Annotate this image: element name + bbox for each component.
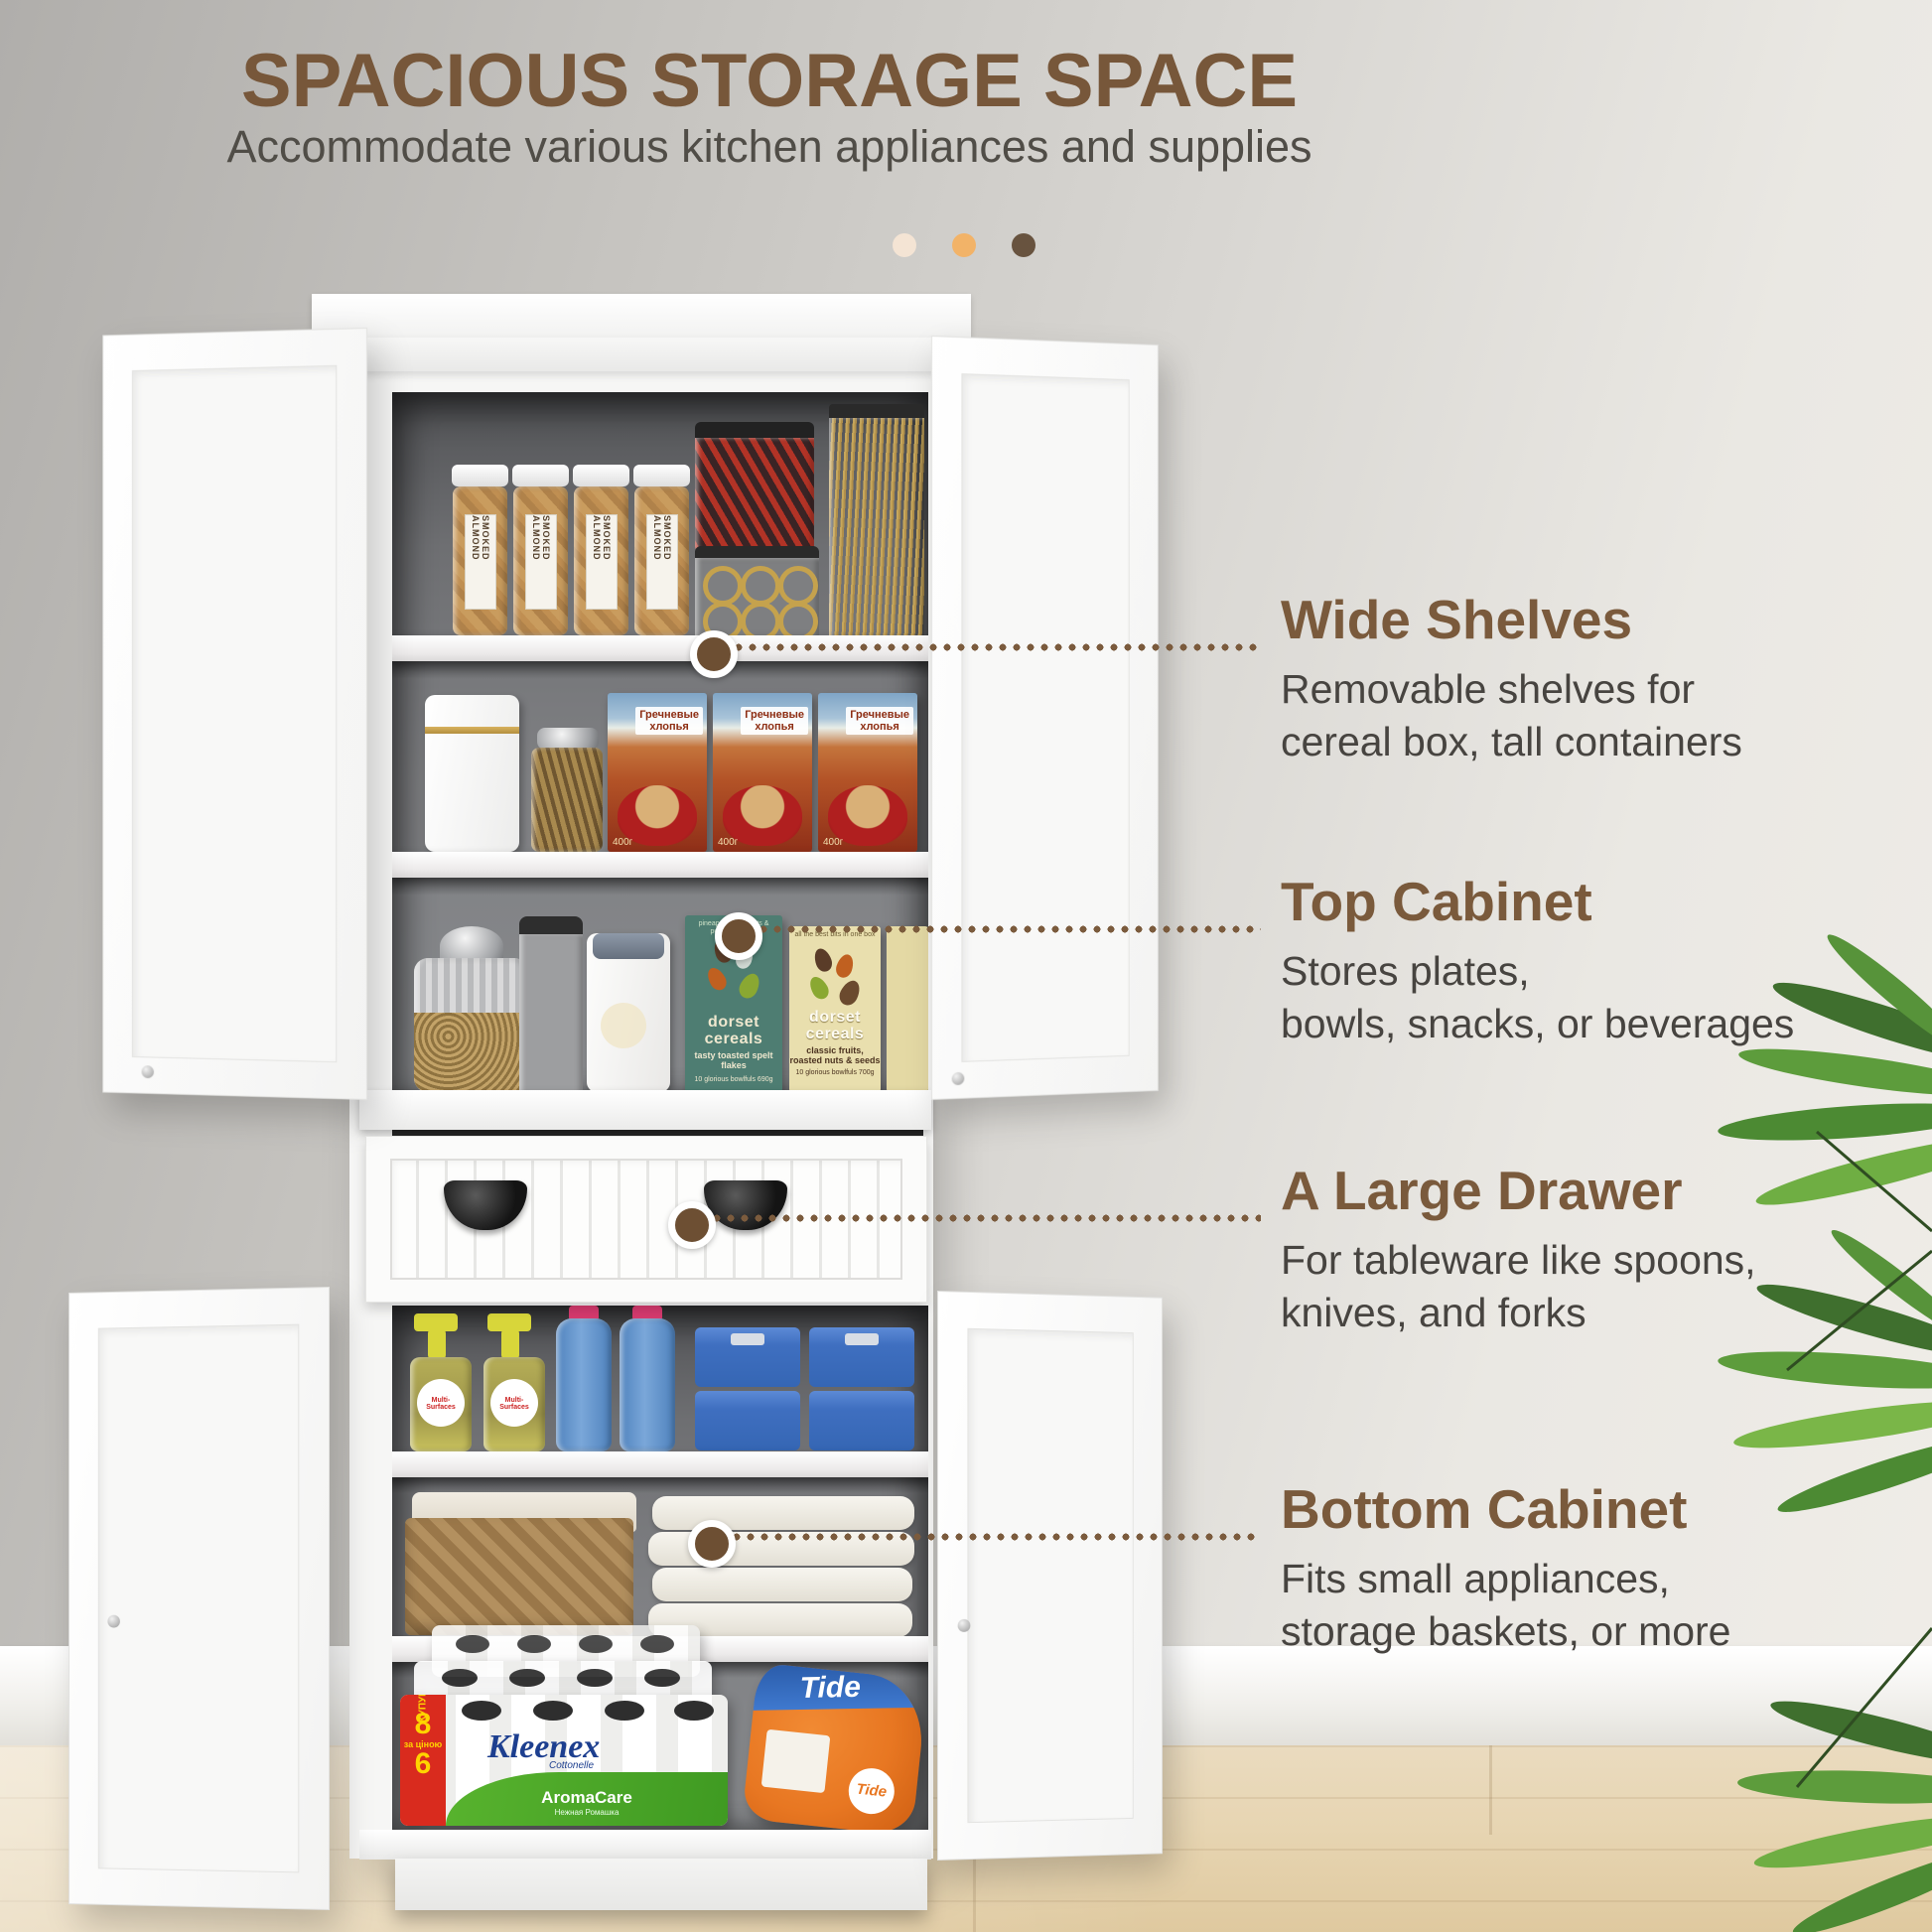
cereal-weight: 400г — [823, 837, 843, 848]
dorset-box-cream-partial — [887, 926, 928, 1092]
door-top-left-panel — [132, 365, 337, 1062]
shelf-shadow — [392, 661, 928, 679]
spray-neck — [501, 1329, 519, 1359]
shelf-shadow — [392, 878, 928, 896]
spray-label: Multi-Surfaces — [417, 1397, 465, 1411]
dorset-brand: dorset — [708, 1014, 759, 1031]
door-bottom-right-panel — [967, 1328, 1133, 1823]
accent-dot-2 — [952, 233, 976, 257]
callout-heading-top-cabinet: Top Cabinet — [1281, 870, 1592, 933]
kleenex-promo-count: 6 — [400, 1749, 446, 1779]
callout-body-line: cereal box, tall containers — [1281, 716, 1742, 768]
spray-bottle: Multi-Surfaces — [410, 1357, 472, 1451]
callout-body-large-drawer: For tableware like spoons, knives, and f… — [1281, 1234, 1756, 1339]
almond-jar-label: SMOKED ALMOND — [471, 515, 490, 609]
tide-label-patch — [761, 1729, 831, 1793]
spray-neck — [428, 1329, 446, 1359]
pepper-container — [695, 422, 814, 552]
spray-bottle: Multi-Surfaces — [483, 1357, 545, 1451]
kleenex-variant-sub: Нежная Ромашка — [446, 1808, 728, 1817]
detergent-bottle — [620, 1318, 675, 1451]
page-subtitle: Accommodate various kitchen appliances a… — [0, 121, 1539, 173]
callout-dot-bottom-cabinet — [688, 1520, 736, 1568]
callout-body-wide-shelves: Removable shelves for cereal box, tall c… — [1281, 663, 1742, 768]
almond-jar-label: SMOKED ALMOND — [652, 515, 672, 609]
page-title: SPACIOUS STORAGE SPACE — [0, 38, 1539, 124]
tide-logo-small: Tide — [848, 1780, 896, 1802]
cereal-box: Гречневые хлопья 400г — [818, 693, 917, 852]
callout-body-line: Stores plates, — [1281, 945, 1794, 998]
callout-line-bottom-cabinet — [733, 1533, 1261, 1541]
callout-heading-wide-shelves: Wide Shelves — [1281, 588, 1632, 651]
dorset-variant: tasty toasted spelt flakes — [685, 1050, 782, 1070]
grain-jar-lid — [537, 728, 599, 750]
cereal-title: Гречневые — [745, 709, 804, 721]
dorset-brand: dorset — [809, 1009, 861, 1026]
cereal-title: Гречневые — [639, 709, 699, 721]
dorset-box-cream: all the best bits in one box dorsetcerea… — [789, 926, 881, 1092]
counter-top — [359, 1090, 931, 1130]
almond-jar: SMOKED ALMOND — [453, 486, 507, 635]
door-bottom-left — [69, 1287, 330, 1910]
door-top-right — [931, 336, 1159, 1100]
detergent-cap — [569, 1306, 599, 1319]
almond-jar: SMOKED ALMOND — [574, 486, 628, 635]
cabinet-crown-molding — [328, 338, 955, 371]
top-cabinet-interior: SMOKED ALMOND SMOKED ALMOND SMOKED ALMON… — [392, 392, 928, 1097]
kleenex-pack: AromaCare Нежная Ромашка Kleenex Cottone… — [400, 1695, 728, 1826]
plastic-container — [519, 916, 583, 1097]
dorset-footer: 10 glorious bowlfuls 690g — [685, 1076, 782, 1084]
cereal-box: Гречневые хлопья 400г — [713, 693, 812, 852]
tide-detergent-bag: Tide Tide — [742, 1662, 928, 1830]
cereal-title: хлопья — [755, 721, 794, 733]
almond-jar-label: SMOKED ALMOND — [531, 515, 551, 609]
plant-leaves — [1638, 933, 1932, 1932]
kleenex-promo-word: КУПУЙ! — [418, 1695, 429, 1727]
cabinet-bottom-edge — [359, 1830, 931, 1860]
callout-body-bottom-cabinet: Fits small appliances, storage baskets, … — [1281, 1553, 1730, 1658]
door-bottom-right — [937, 1291, 1163, 1861]
kleenex-variant: AromaCare — [446, 1788, 728, 1808]
shelf-shadow — [392, 1477, 928, 1493]
folded-towel — [652, 1496, 914, 1530]
almond-jar-lid — [633, 465, 690, 486]
kleenex-sub: Cottonelle — [549, 1760, 594, 1771]
callout-dot-large-drawer — [668, 1201, 716, 1249]
door-bottom-left-panel — [98, 1324, 300, 1873]
product-infographic: SPACIOUS STORAGE SPACE Accommodate vario… — [0, 0, 1932, 1932]
accent-dot-1 — [893, 233, 916, 257]
door-knob — [142, 1065, 154, 1078]
callout-body-line: Fits small appliances, — [1281, 1553, 1730, 1605]
dorset-brand: cereals — [705, 1031, 763, 1047]
tin-canister — [587, 933, 670, 1092]
callout-line-large-drawer — [713, 1214, 1261, 1222]
storage-box — [809, 1391, 914, 1450]
almond-jar: SMOKED ALMOND — [634, 486, 689, 635]
spray-label: Multi-Surfaces — [490, 1397, 538, 1411]
dorset-brand: cereals — [806, 1026, 865, 1042]
detergent-cap — [632, 1306, 662, 1319]
cereal-box: Гречневые хлопья 400г — [608, 693, 707, 852]
cabinet-crown-top — [312, 294, 971, 338]
door-top-right-panel — [961, 373, 1129, 1062]
almond-jar-label: SMOKED ALMOND — [592, 515, 612, 609]
almond-jar-lid — [452, 465, 508, 486]
spaghetti-container — [829, 404, 924, 649]
callout-dot-wide-shelves — [690, 630, 738, 678]
door-knob — [107, 1615, 120, 1628]
detergent-bottle — [556, 1318, 612, 1451]
dorset-footer: 10 glorious bowlfuls 700g — [789, 1069, 881, 1077]
accent-dot-3 — [1012, 233, 1035, 257]
almond-jar-lid — [573, 465, 629, 486]
callout-body-line: storage baskets, or more — [1281, 1605, 1730, 1658]
callout-body-line: For tableware like spoons, — [1281, 1234, 1756, 1287]
folded-towel — [652, 1568, 912, 1601]
callout-body-line: knives, and forks — [1281, 1287, 1756, 1339]
callout-body-top-cabinet: Stores plates, bowls, snacks, or beverag… — [1281, 945, 1794, 1050]
door-knob — [958, 1619, 971, 1632]
tide-logo: Tide — [799, 1671, 861, 1706]
callout-heading-large-drawer: A Large Drawer — [1281, 1159, 1683, 1222]
callout-body-line: bowls, snacks, or beverages — [1281, 998, 1794, 1050]
ribbed-glass-jar — [414, 958, 528, 1092]
door-top-left — [102, 328, 367, 1100]
storage-box — [809, 1327, 914, 1387]
cabinet-plinth — [395, 1859, 927, 1910]
almond-jar: SMOKED ALMOND — [513, 486, 568, 635]
cereal-title: хлопья — [649, 721, 689, 733]
shelf-bottom-1 — [392, 1451, 928, 1477]
wicker-basket — [405, 1518, 633, 1635]
almond-jar-lid — [512, 465, 569, 486]
storage-box — [695, 1391, 800, 1450]
cereal-weight: 400г — [718, 837, 738, 848]
tin-lid — [593, 933, 664, 959]
grain-jar — [531, 748, 603, 852]
callout-body-line: Removable shelves for — [1281, 663, 1742, 716]
bottom-cabinet-interior: Multi-Surfaces Multi-Surfaces — [392, 1306, 928, 1830]
dorset-variant: classic fruits, roasted nuts & seeds — [789, 1045, 881, 1065]
callout-dot-top-cabinet — [715, 912, 762, 960]
cereal-title: Гречневые — [850, 709, 909, 721]
callout-heading-bottom-cabinet: Bottom Cabinet — [1281, 1477, 1687, 1541]
cereal-title: хлопья — [860, 721, 899, 733]
door-knob — [952, 1072, 965, 1085]
cereal-weight: 400г — [613, 837, 632, 848]
white-canister — [425, 695, 519, 852]
storage-box — [695, 1327, 800, 1387]
callout-line-top-cabinet — [759, 925, 1261, 933]
callout-line-wide-shelves — [735, 643, 1261, 651]
shelf-top-2 — [392, 852, 928, 878]
